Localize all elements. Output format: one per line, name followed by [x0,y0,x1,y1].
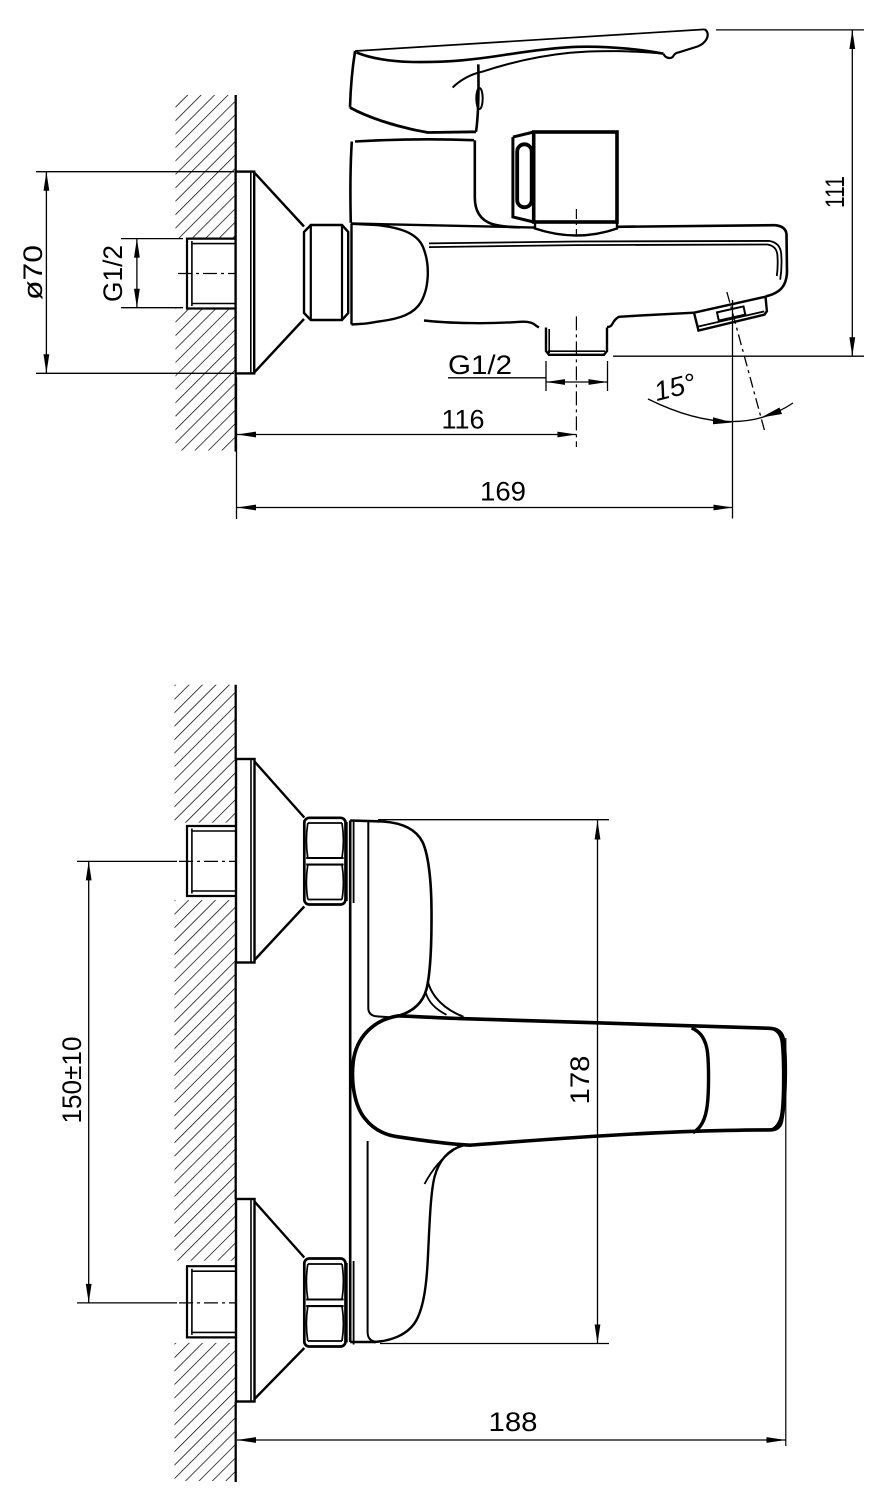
svg-text:G1/2: G1/2 [98,245,128,302]
svg-text:ø70: ø70 [18,245,48,300]
svg-text:178: 178 [565,1056,595,1105]
svg-text:188: 188 [489,1407,538,1437]
svg-text:150±10: 150±10 [57,1037,87,1124]
svg-text:116: 116 [442,405,485,435]
svg-text:G1/2: G1/2 [448,350,512,380]
svg-text:169: 169 [480,477,526,507]
svg-text:111: 111 [820,176,850,208]
